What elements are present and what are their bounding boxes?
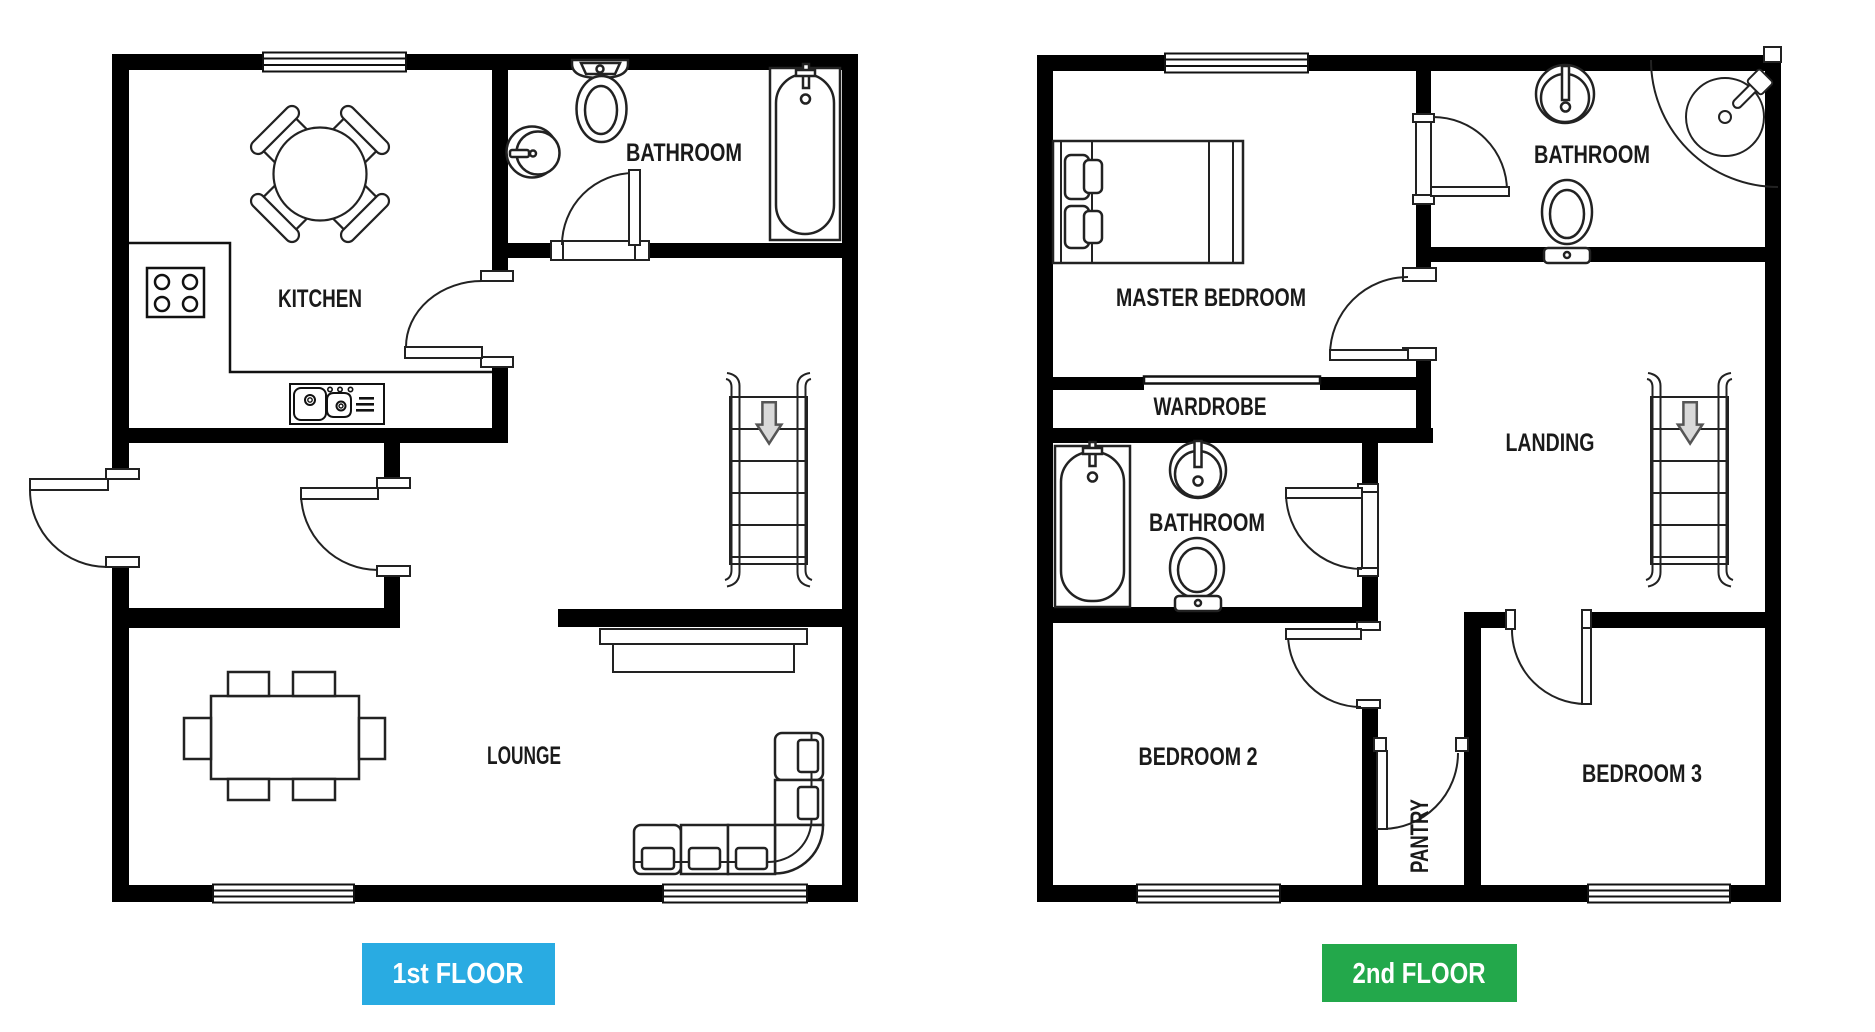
svg-text:BATHROOM: BATHROOM	[1534, 141, 1650, 169]
svg-text:1st FLOOR: 1st FLOOR	[393, 958, 524, 990]
svg-text:2nd FLOOR: 2nd FLOOR	[1353, 958, 1486, 990]
svg-text:LOUNGE: LOUNGE	[487, 742, 561, 770]
svg-text:BEDROOM 2: BEDROOM 2	[1139, 743, 1258, 771]
svg-text:WARDROBE: WARDROBE	[1154, 393, 1267, 421]
svg-text:LANDING: LANDING	[1506, 429, 1595, 457]
svg-text:BATHROOM: BATHROOM	[1149, 509, 1265, 537]
svg-text:BATHROOM: BATHROOM	[626, 139, 742, 167]
svg-text:MASTER BEDROOM: MASTER BEDROOM	[1116, 284, 1306, 312]
svg-text:BEDROOM 3: BEDROOM 3	[1582, 760, 1702, 788]
svg-text:PANTRY: PANTRY	[1406, 799, 1434, 873]
svg-text:KITCHEN: KITCHEN	[278, 285, 362, 313]
